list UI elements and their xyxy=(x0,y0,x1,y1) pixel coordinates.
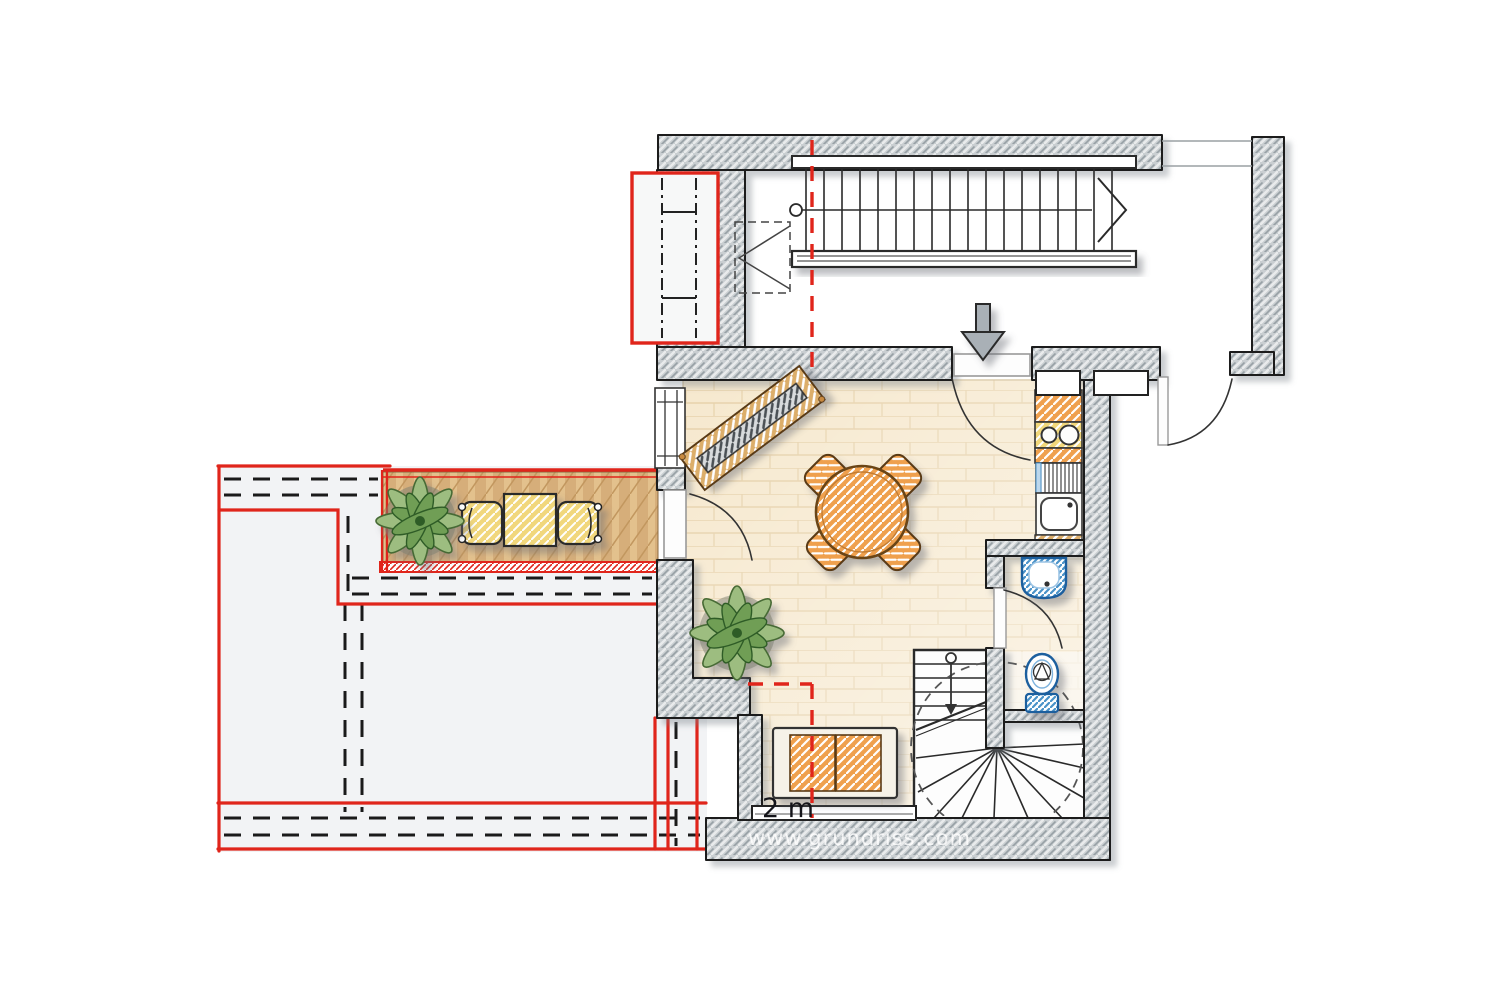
kitchen-counter-lower xyxy=(1035,448,1082,463)
room-plant xyxy=(690,586,784,680)
stair-handrail xyxy=(792,251,1136,267)
kitchen-drainer xyxy=(1036,463,1082,493)
wall-east xyxy=(1084,380,1110,860)
terrace-plant xyxy=(376,477,464,565)
wall-bath-west xyxy=(986,556,1004,588)
hand-basin xyxy=(1022,558,1066,598)
dining-set xyxy=(801,451,925,574)
toilet xyxy=(1026,654,1058,712)
scale-label: 2 m xyxy=(762,793,814,824)
terrace-seating-group xyxy=(459,494,602,546)
hob-burner-large xyxy=(1060,426,1079,445)
dining-table xyxy=(816,466,908,558)
hob-burner-small xyxy=(1042,428,1057,443)
kitchenette xyxy=(1035,390,1082,549)
wall-niche-right xyxy=(1094,371,1148,395)
floor-plan-canvas: 2 m www.grundriss.com xyxy=(0,0,1500,1000)
kitchen-sink xyxy=(1036,493,1082,535)
terrace-table xyxy=(504,494,556,546)
sofa xyxy=(773,728,897,798)
terrace-chair-right xyxy=(558,502,602,544)
watermark: www.grundriss.com xyxy=(748,826,971,850)
wall-window-pier xyxy=(657,466,685,490)
terrace-chair-left xyxy=(459,502,503,544)
wall-neighbor-stub xyxy=(1230,352,1274,375)
wall-west-strip xyxy=(738,715,762,820)
wall-niche-left xyxy=(1036,371,1080,395)
stair-stringer-top xyxy=(792,156,1136,168)
wall-stairwell-right xyxy=(1252,137,1284,375)
kitchen-hob xyxy=(1035,422,1082,448)
wall-stair-newel xyxy=(986,648,1004,748)
wall-bath-north-band xyxy=(986,540,1084,556)
new-window-red-box xyxy=(632,173,718,343)
